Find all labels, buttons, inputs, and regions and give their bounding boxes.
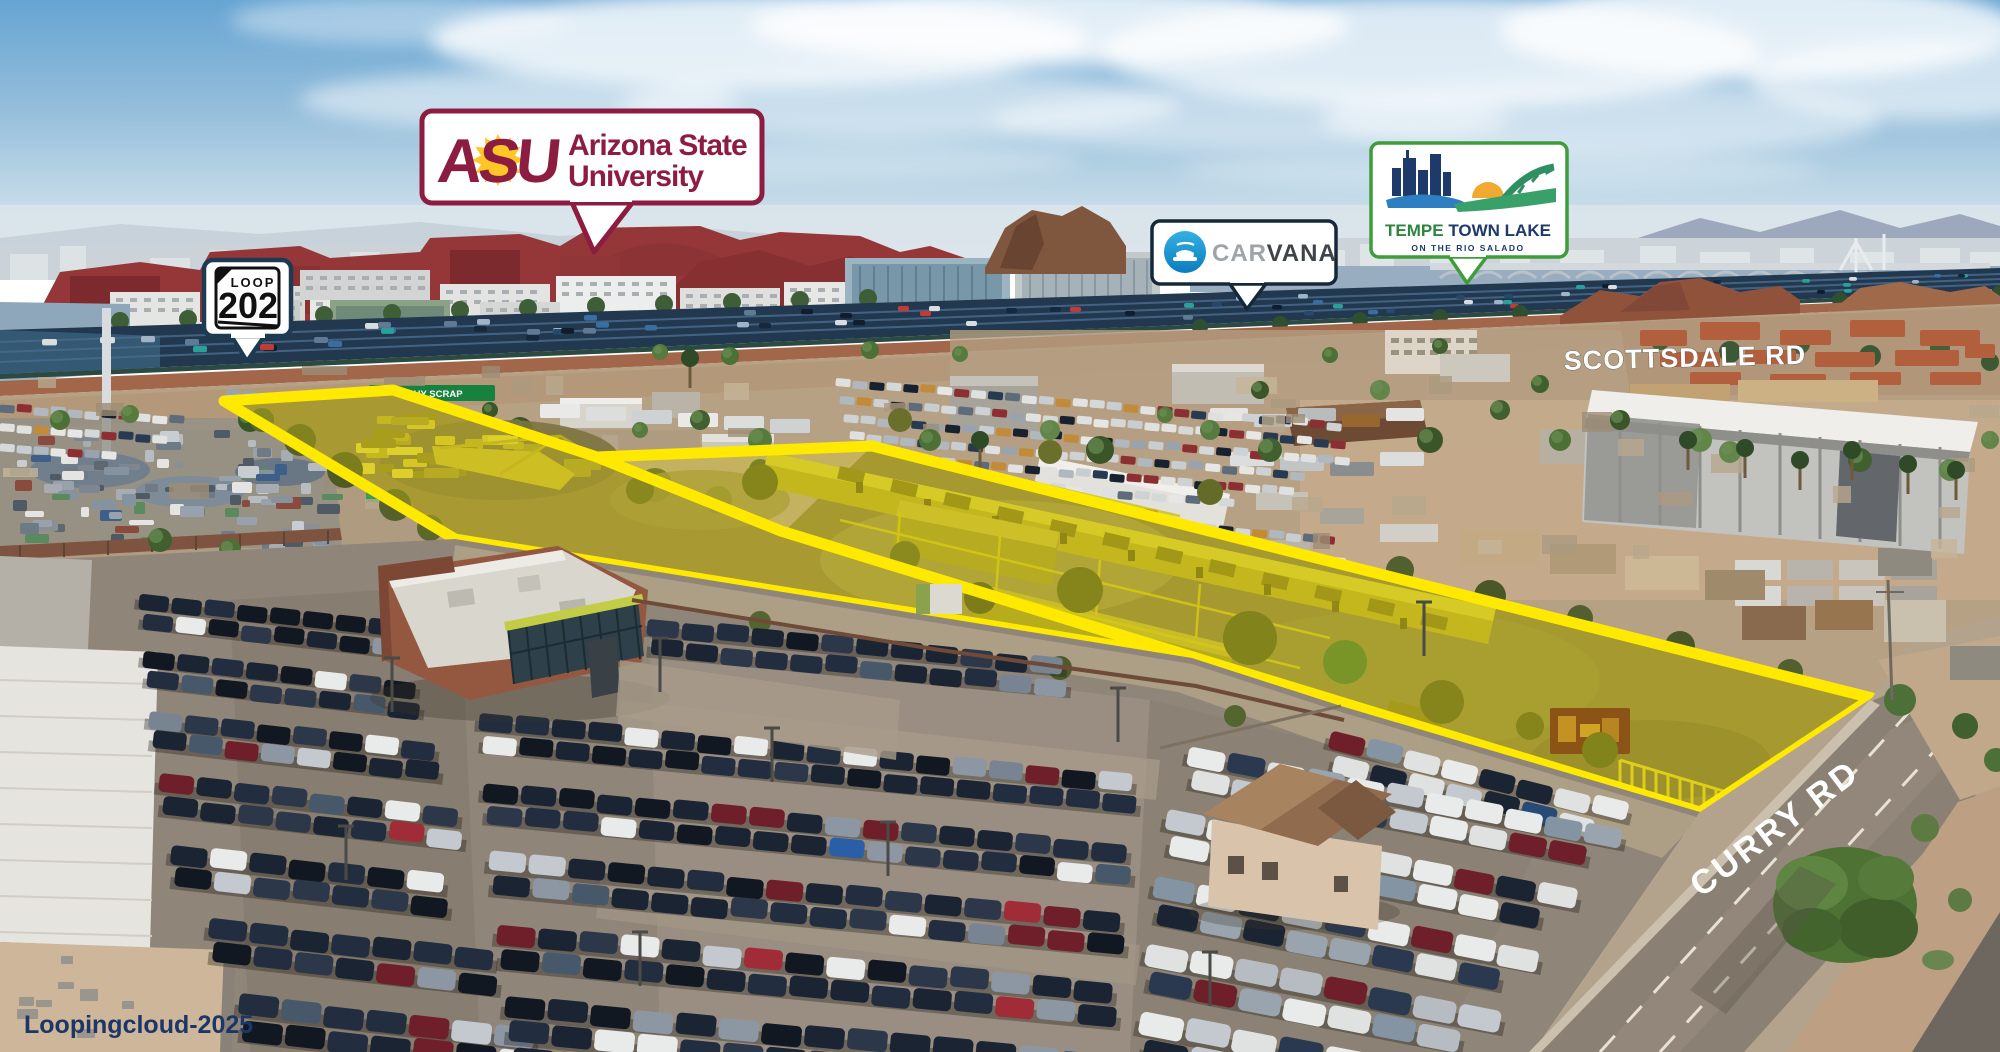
svg-text:CARVANA: CARVANA [1212, 240, 1337, 267]
svg-text:ON THE RIO SALADO: ON THE RIO SALADO [1411, 243, 1524, 253]
svg-text:TEMPE TOWN LAKE: TEMPE TOWN LAKE [1385, 221, 1551, 240]
svg-text:SCOTTSDALE RD: SCOTTSDALE RD [1563, 340, 1806, 376]
svg-text:202: 202 [218, 285, 278, 326]
svg-text:ASU: ASU [435, 127, 562, 196]
svg-text:Loopingcloud-2025: Loopingcloud-2025 [24, 1011, 253, 1039]
svg-text:University: University [568, 160, 704, 193]
svg-text:Arizona State: Arizona State [568, 129, 747, 162]
